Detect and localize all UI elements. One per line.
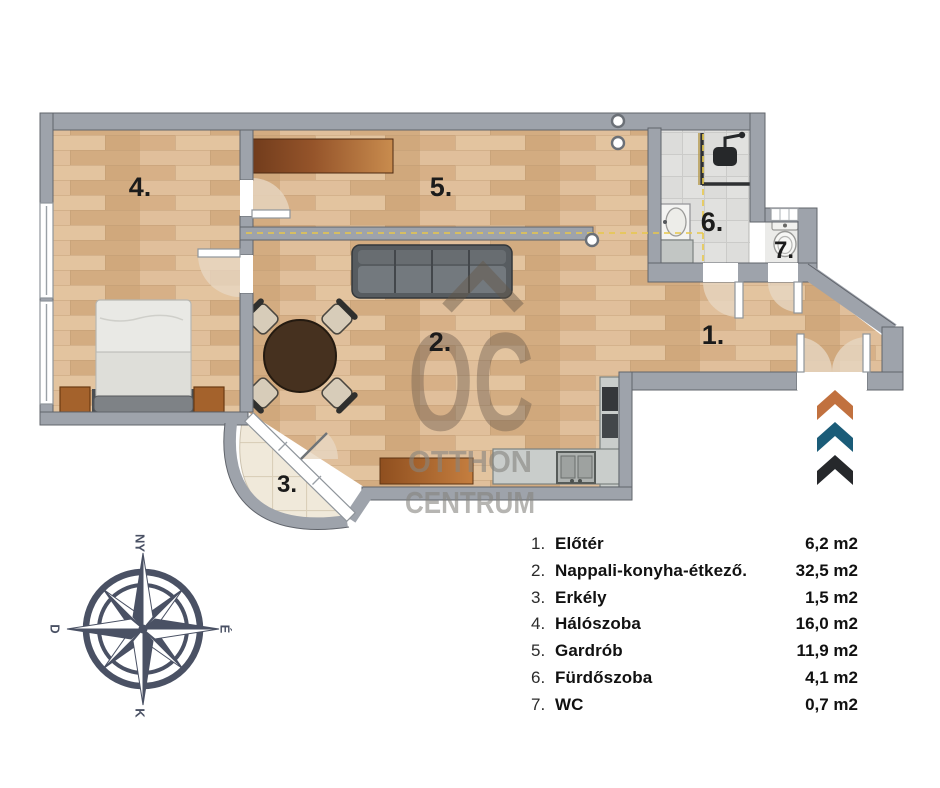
legend-item-area: 4,1 m2: [805, 665, 858, 692]
legend: 1. Előtér 6,2 m2 2. Nappali-konyha-étkez…: [531, 531, 858, 719]
legend-item-name: Előtér: [555, 531, 805, 558]
door-opening-bathroom: [703, 263, 738, 282]
legend-item-number: 4.: [531, 611, 555, 638]
legend-item-name: Hálószoba: [555, 611, 796, 638]
wall-bedroom-south: [40, 412, 248, 425]
door-leaf-wc: [794, 282, 802, 313]
legend-row: 6. Fürdőszoba 4,1 m2: [531, 665, 858, 692]
legend-item-area: 0,7 m2: [805, 692, 858, 719]
fridge: [602, 414, 618, 438]
door-leaf-bathroom: [735, 282, 743, 318]
legend-item-name: Nappali-konyha-étkező.: [555, 558, 796, 585]
nightstand-left: [60, 387, 90, 412]
washing-machine: [660, 240, 693, 263]
door-opening-entry: [797, 372, 867, 390]
watermark-line1: OTTHON: [408, 444, 532, 479]
room-label-2: 2.: [429, 327, 452, 357]
legend-item-number: 2.: [531, 558, 555, 585]
room-label-4: 4.: [129, 172, 152, 202]
legend-item-area: 6,2 m2: [805, 531, 858, 558]
wall-node-marker: [612, 137, 624, 149]
wall-bathroom-east: [750, 113, 765, 222]
legend-item-number: 3.: [531, 585, 555, 612]
legend-item-number: 7.: [531, 692, 555, 719]
compass-label-north: É: [218, 625, 233, 634]
legend-item-area: 11,9 m2: [797, 638, 858, 665]
oven: [602, 387, 618, 411]
wardrobe: [247, 139, 393, 173]
legend-row: 4. Hálószoba 16,0 m2: [531, 611, 858, 638]
legend-row: 3. Erkély 1,5 m2: [531, 585, 858, 612]
legend-item-area: 1,5 m2: [805, 585, 858, 612]
chevron-orange-icon: [817, 390, 853, 420]
room-label-5: 5.: [430, 172, 453, 202]
window-bedroom-lower: [40, 301, 53, 404]
wall-top: [40, 113, 765, 130]
window-bedroom-upper: [40, 203, 53, 298]
legend-item-number: 6.: [531, 665, 555, 692]
bed: [92, 300, 196, 412]
wall-bathroom-west: [648, 128, 661, 282]
legend-row: 2. Nappali-konyha-étkező. 32,5 m2: [531, 558, 858, 585]
wall-node-marker: [586, 234, 598, 246]
legend-item-number: 1.: [531, 531, 555, 558]
floor-plan-page: OC OTTHON CENTRUM 1. 2. 3. 4. 5. 6. 7.: [0, 0, 940, 788]
door-leaf-room5: [252, 210, 290, 218]
wall-room4-east-c: [240, 293, 253, 412]
room-label-7: 7.: [774, 237, 794, 264]
compass-label-east: K: [133, 708, 148, 718]
watermark-line2: CENTRUM: [405, 485, 535, 520]
door-leaf-room4: [198, 249, 240, 257]
window-wc: [771, 209, 798, 221]
entry-direction-chevrons: [817, 390, 853, 485]
legend-row: 1. Előtér 6,2 m2: [531, 531, 858, 558]
compass-label-west: NY: [133, 534, 148, 552]
chevron-teal-icon: [817, 422, 853, 452]
legend-item-name: Fürdőszoba: [555, 665, 805, 692]
watermark-logo: OC: [408, 303, 534, 460]
door-opening-wc: [768, 263, 798, 282]
door-leaf-entry-left: [797, 334, 804, 372]
wall-kitchen-east: [619, 372, 632, 500]
legend-item-name: Erkély: [555, 585, 805, 612]
door-opening-room5: [240, 180, 253, 216]
wall-node-marker: [612, 115, 624, 127]
legend-item-area: 16,0 m2: [796, 611, 858, 638]
wall-room4-east-a: [240, 130, 253, 180]
dining-table: [264, 320, 336, 392]
room-label-3: 3.: [277, 471, 297, 498]
nightstand-right: [194, 387, 224, 412]
chevron-black-icon: [817, 455, 853, 485]
room-label-1: 1.: [702, 320, 725, 350]
compass-rose: NY É K D: [48, 534, 233, 718]
legend-item-name: WC: [555, 692, 805, 719]
legend-item-number: 5.: [531, 638, 555, 665]
door-opening-room4: [240, 255, 253, 293]
legend-item-area: 32,5 m2: [796, 558, 858, 585]
room-label-6: 6.: [701, 207, 724, 237]
compass-label-south: D: [48, 624, 63, 633]
wall-bottom-left-of-entry: [632, 372, 797, 390]
bathroom-sink: [660, 204, 690, 240]
legend-row: 7. WC 0,7 m2: [531, 692, 858, 719]
legend-row: 5. Gardrób 11,9 m2: [531, 638, 858, 665]
kitchen-sink: [557, 452, 595, 483]
door-leaf-entry-right: [863, 334, 870, 372]
legend-item-name: Gardrób: [555, 638, 797, 665]
wall-bottom-right-of-entry: [867, 372, 903, 390]
